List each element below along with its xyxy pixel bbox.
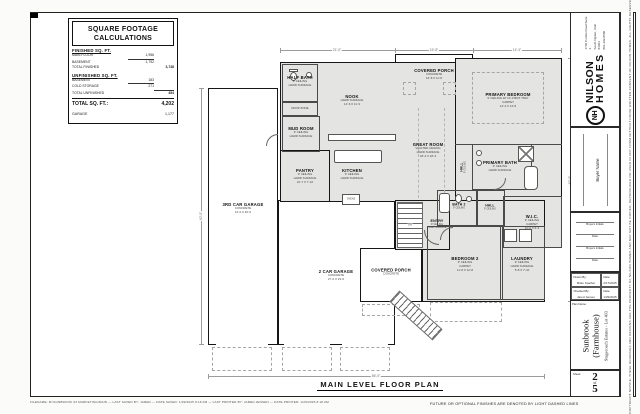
kitchen-island xyxy=(334,150,382,163)
room-label-primary-bath: PRIMARY BATH 9' CEILING HARD SURFACE xyxy=(483,160,517,173)
driveway-apron-dashed xyxy=(282,347,332,371)
sink-icon xyxy=(476,160,482,166)
dimension-label: 16'-8" xyxy=(429,48,439,52)
dimension-label: 21'-0" xyxy=(332,48,342,52)
room-label-pantry: PANTRY 9' CEILING HARD SURFACE 10'-7 X 7… xyxy=(294,168,317,184)
initials-row: Buyers Initials xyxy=(576,239,614,251)
initials-row: Date xyxy=(576,227,614,239)
room-label-hall1: HALL 9' CEILING xyxy=(460,161,467,173)
driveway-apron-dashed xyxy=(212,347,272,371)
room-label-nook: NOOK HARD SURFACE 14'-6 X 11'-3 xyxy=(341,94,364,107)
signature-line xyxy=(607,134,608,206)
room-label-covered-porch-bottom: COVERED PORCH CONCRETE xyxy=(371,268,411,277)
room-label-mud-room: MUD ROOM 9' CEILING HARD SURFACE xyxy=(288,126,313,139)
plan-name-label: Plan Name: xyxy=(571,301,619,306)
future-patio-dashed xyxy=(430,302,502,322)
titleblock-credits-section: Drawn By: Milan Spather Date: 2/17/2025 … xyxy=(570,272,620,300)
driveway-apron-dashed xyxy=(340,347,390,371)
room-label-entry: ENTRY 9' CEILING HARD SURFACE xyxy=(428,219,447,229)
porch-post-dashed xyxy=(403,82,416,95)
checked-date-field: Date: 1/29/2025 xyxy=(601,287,619,300)
dim-tick xyxy=(208,374,209,379)
washer-icon xyxy=(504,229,517,242)
dim-tick xyxy=(473,48,474,53)
sink-icon xyxy=(476,150,482,156)
dim-tick xyxy=(280,48,281,53)
brand-name: NILSON HOMES xyxy=(585,52,606,103)
room-label-hall2: HALL 9' CEILING xyxy=(484,204,496,211)
checked-by-field: Checked By: Jared Jensen xyxy=(571,287,601,300)
dim-tick xyxy=(199,344,204,345)
initials-row: Date xyxy=(576,251,614,263)
dim-tick xyxy=(395,48,396,53)
brand-address: 1740 Combe Road Suite 2 South Ogden, Uta… xyxy=(584,15,607,49)
signature-line xyxy=(583,134,584,206)
future-finishes-note: FUTURE OR OPTIONAL FINISHES ARE DENOTED … xyxy=(430,402,578,406)
room-label-bedroom2: BEDROOM 2 9' CEILING CARPET 11'-8 X 12'-… xyxy=(451,256,478,272)
room-label-primary-bedroom: PRIMARY BEDROOM 9' CEILING W/ 10'-0 BOX … xyxy=(485,92,530,108)
room-label-2-car-garage: 2 CAR GARAGE CONCRETE 27'-0 X 23'-0 xyxy=(319,269,354,282)
titleblock-sheet-section: Sheet: 2 of 5 xyxy=(570,370,620,397)
vault-line-dashed xyxy=(444,108,445,198)
dimension-label: 40'-0" xyxy=(199,211,203,221)
buyer-name-label: Buyer Name xyxy=(586,158,604,181)
initials-row: Buyers Initials xyxy=(576,215,614,227)
sqft-title-line2: CALCULATIONS xyxy=(73,34,173,43)
room-label-drop-zone: DROP ZONE xyxy=(291,107,308,111)
stair-direction-label: DN xyxy=(408,223,413,226)
sink-icon xyxy=(466,196,472,202)
sheet-label: Sheet: xyxy=(572,371,582,376)
kitchen-counter xyxy=(328,134,396,141)
sqft-table: SQUARE FOOTAGE CALCULATIONS FINISHED SQ.… xyxy=(68,18,178,124)
titleblock-buyer-section: Buyer Name xyxy=(570,127,620,212)
table-row-total-unfinished: TOTAL UNFINISHED 454 xyxy=(72,90,174,96)
room-label-3rd-car-garage: 3RD CAR GARAGE CONCRETE 12'-0 X 40'-0 xyxy=(223,202,264,215)
room-label-kitchen: KITCHEN 9' CEILING HARD SURFACE xyxy=(341,168,364,181)
bathtub-icon xyxy=(524,166,538,190)
room-label-bath2: BATH 2 9' CEILING xyxy=(452,202,465,209)
floor-plan: COVERED PORCH CONCRETE 16'-8 X 11'-8 HAL… xyxy=(200,50,574,384)
dryer-icon xyxy=(519,229,532,242)
room-3rd-car-garage xyxy=(208,88,278,345)
registration-mark xyxy=(30,13,38,18)
titleblock-initials-section: Buyers Initials Date Buyers Initials Dat… xyxy=(570,212,620,272)
titleblock-plan-name-section: Plan Name: Sunbrook (Farmhouse) Stagecoa… xyxy=(570,300,620,370)
sqft-title: SQUARE FOOTAGE CALCULATIONS xyxy=(72,21,174,46)
titleblock-logo-section: NH NILSON HOMES 1740 Combe Road Suite 2 … xyxy=(570,12,620,127)
plot-stamp: FILENAME: M:\SUNBROOK 03 MARKETING\MAIN … xyxy=(30,400,410,404)
room-label-covered-porch-top: COVERED PORCH CONCRETE 16'-8 X 11'-8 xyxy=(414,68,454,81)
wall-bedroom-bath-divider xyxy=(455,144,562,145)
copyright-text: COPYRIGHT NOTICE: THESE DRAWINGS AND DES… xyxy=(618,0,636,413)
table-row-total-finished: TOTAL FINISHED 3,748 xyxy=(72,65,174,70)
room-label-wic: W.I.C. 9' CEILING CARPET 12'-0 X 6'-4 xyxy=(525,214,540,230)
dimension-label: 14'-4" xyxy=(512,48,522,52)
sqft-garage-row: GARAGE 1,177 xyxy=(72,112,174,116)
room-label-great-room: GREAT ROOM VAULTED CEILING HARD SURFACE … xyxy=(413,142,444,158)
dim-tick xyxy=(561,48,562,53)
drawn-by-field: Drawn By: Milan Spather xyxy=(571,273,601,287)
room-label-laundry: LAUNDRY 9' CEILING HARD SURFACE 5'-8 X 7… xyxy=(511,256,534,272)
copyright-strip: COPYRIGHT NOTICE: THESE DRAWINGS AND DES… xyxy=(620,12,634,397)
dim-tick xyxy=(544,374,545,379)
plan-name: Sunbrook (Farmhouse) Stagecoach Estates … xyxy=(582,311,609,361)
room-label-ovens: OVENS xyxy=(347,198,355,201)
sqft-grand-total: TOTAL SQ. FT.: 4,202 xyxy=(72,98,174,107)
bathtub-icon xyxy=(439,193,450,213)
room-label-half-bath: HALF BATH 9' CEILING HARD SURFACE xyxy=(287,75,312,88)
dim-tick xyxy=(199,88,204,89)
sqft-title-line1: SQUARE FOOTAGE xyxy=(73,25,173,34)
shower-icon xyxy=(518,146,534,162)
nh-logo-icon: NH xyxy=(586,106,605,125)
plan-title: MAIN LEVEL FLOOR PLAN xyxy=(290,374,470,392)
brand-lockup: NH NILSON HOMES 1740 Combe Road Suite 2 … xyxy=(573,15,617,125)
drawn-date-field: Date: 2/17/2025 xyxy=(601,273,619,287)
porch-post-dashed xyxy=(443,82,456,95)
